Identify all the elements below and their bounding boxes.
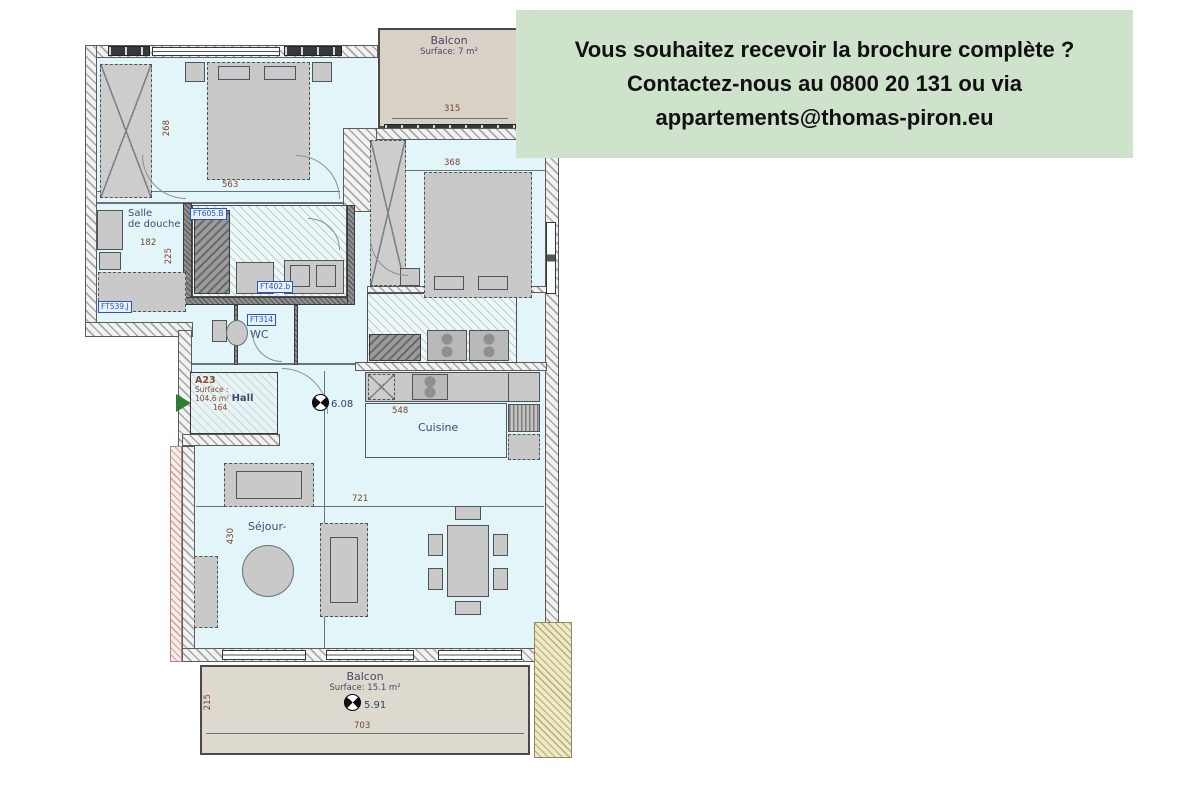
wall-section-pink: [170, 446, 182, 662]
balcony-bottom-dim-h: 215: [203, 694, 213, 710]
wall-sejour-west: [182, 446, 195, 662]
ft-label-douche: FT539.J: [98, 301, 132, 313]
kitchen-unit-low: [508, 434, 540, 460]
wall-left: [85, 45, 97, 337]
banner-line-1: Vous souhaitez recevoir la brochure comp…: [575, 33, 1075, 67]
window-top-3: [284, 46, 342, 56]
ft-label-bain-bottom: FT402.b: [257, 281, 293, 293]
machine-2: [469, 330, 509, 361]
chair-right-2: [493, 568, 508, 590]
balcony-bottom-dim-w: 703: [354, 721, 370, 731]
chair-left-1: [428, 534, 443, 556]
balcony-top-surface: Surface: 7 m²: [378, 47, 520, 57]
washbasin-douche: [99, 252, 121, 270]
dimension-line: [392, 118, 508, 119]
balcony-top-label: Balcon Surface: 7 m²: [378, 34, 520, 57]
pillow-chambre1-right: [264, 66, 296, 80]
bathroom-cabinet: [194, 210, 230, 294]
wall-loctech-bottom: [355, 362, 547, 371]
pillow-chambre1-left: [218, 66, 250, 80]
wall-hall-south: [182, 434, 280, 446]
pillow-chambre2-right: [478, 276, 508, 290]
chair-left-2: [428, 568, 443, 590]
window-sejour-2: [326, 650, 414, 660]
north-value-balcony: 5.91: [364, 700, 386, 711]
kitchen-sink: [508, 404, 540, 432]
entrance-arrow-icon: [176, 394, 191, 412]
wall-bain-east: [347, 205, 355, 305]
window-sejour-1: [222, 650, 306, 660]
wall-douche-bottom: [85, 322, 193, 337]
sejour-dim-h: 430: [226, 528, 236, 544]
wall-chambre1-bottom: [95, 202, 350, 204]
kitchen-appliance-x: [368, 374, 395, 400]
hall-dim: 164: [195, 403, 227, 412]
north-value-hall: 6.08: [331, 399, 353, 410]
salle-de-douche-label: Salle de douche: [128, 208, 180, 230]
banner-line-3: appartements@thomas-piron.eu: [655, 101, 993, 135]
wardrobe-chambre1: [100, 64, 152, 198]
balcony-bottom-surface: Surface: 15.1 m²: [200, 683, 530, 693]
ft-label-bain-top: FT605.B: [190, 208, 227, 220]
douche-dim-w: 182: [140, 238, 156, 248]
sofa-seat: [330, 537, 358, 603]
toilet-bowl: [226, 320, 248, 346]
toilet-tank: [212, 320, 227, 342]
washbasin-right: [316, 265, 336, 287]
salle-de-douche-line1: Salle: [128, 208, 152, 219]
sideboard-inner: [236, 471, 302, 499]
unit-surface-label: Surface :: [195, 385, 228, 394]
dimension-line: [206, 733, 524, 734]
chambre2-dim-w: 368: [444, 158, 460, 168]
chair-top: [455, 506, 481, 520]
machine-1: [427, 330, 467, 361]
wall-wc-east: [294, 305, 298, 365]
cuisine-dim-w: 548: [392, 406, 408, 416]
pillow-chambre2-left: [434, 276, 464, 290]
balcony-top-name: Balcon: [430, 34, 467, 47]
shower-unit: [97, 210, 123, 250]
balcony-bottom-name: Balcon: [346, 670, 383, 683]
banner-line-2: Contactez-nous au 0800 20 131 ou via: [627, 67, 1022, 101]
sejour-label: Séjour-: [248, 520, 286, 533]
salle-de-douche-line2: de douche: [128, 219, 180, 230]
nightstand-chambre1-left: [185, 62, 205, 82]
chair-bottom: [455, 601, 481, 615]
lowboard-tv: [194, 556, 218, 628]
window-chambre2-east: [546, 222, 556, 294]
balcony-bottom-label: Balcon Surface: 15.1 m²: [200, 670, 530, 693]
chambre1-dim-h: 268: [162, 120, 172, 136]
kitchen-fridge: [508, 372, 540, 402]
wall-bain-south: [183, 297, 355, 305]
chambre1-dim-w: 563: [222, 180, 238, 190]
brochure-banner: Vous souhaitez recevoir la brochure comp…: [516, 10, 1133, 158]
douche-dim-h: 225: [164, 248, 174, 264]
unit-surface-value: 104.6 m²: [195, 394, 229, 403]
cuisine-label: Cuisine: [418, 421, 458, 434]
window-top-2: [152, 47, 280, 56]
sejour-dim-w: 721: [352, 494, 368, 504]
ft-label-wc: FT314: [247, 314, 276, 326]
chair-right-1: [493, 534, 508, 556]
balcony-separation-wall: [534, 622, 572, 758]
wall-hall-north: [192, 363, 358, 365]
round-table: [242, 545, 294, 597]
loc-tech-slab: [369, 334, 421, 361]
dining-table: [447, 525, 489, 597]
nightstand-chambre1-right: [312, 62, 332, 82]
window-top-1: [108, 46, 150, 56]
window-sejour-3: [438, 650, 522, 660]
balcony-top-dim: 315: [444, 104, 460, 114]
kitchen-hob: [412, 374, 448, 400]
wall-right: [545, 128, 559, 662]
unit-info-block: A23 Surface : 104.6 m² Hall 164: [190, 372, 278, 434]
hall-label: Hall: [232, 393, 254, 404]
